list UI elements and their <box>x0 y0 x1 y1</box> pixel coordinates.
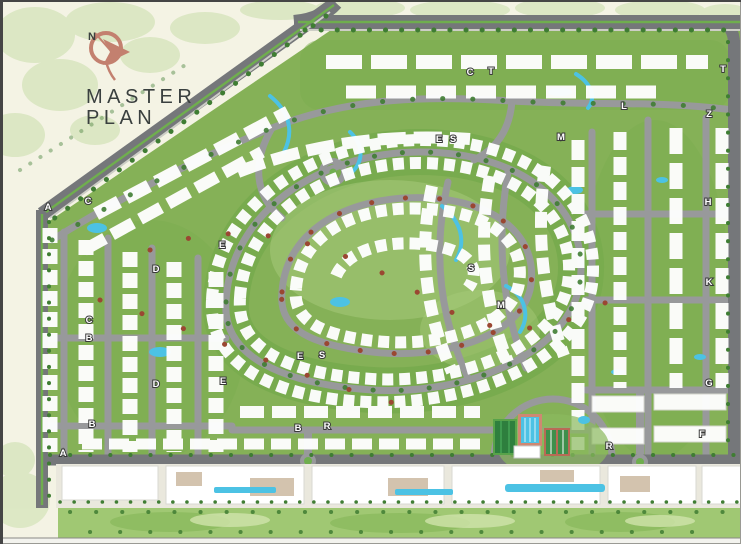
master-plan-poster: ACEDCBESDEBABRCTESMLTZHKSMGFR N MASTER P… <box>0 0 741 544</box>
zone-label-C: C <box>86 315 93 326</box>
zone-label-E: E <box>297 351 303 362</box>
zone-label-A: A <box>60 448 67 459</box>
logo-title-line2: PLAN <box>86 107 156 129</box>
park-strip <box>58 508 741 538</box>
zone-label-E: E <box>220 376 226 387</box>
zone-label-E: E <box>219 240 225 251</box>
zone-label-S: S <box>319 350 325 361</box>
zone-label-E: E <box>436 134 442 145</box>
zone-label-S: S <box>468 263 474 274</box>
zone-label-T: T <box>488 66 494 77</box>
zone-label-S: S <box>450 134 456 145</box>
compass-north-letter: N <box>88 31 96 43</box>
zone-label-B: B <box>86 333 93 344</box>
zone-label-F: F <box>699 429 705 440</box>
zone-label-B: B <box>89 419 96 430</box>
plaza-fountain <box>214 487 276 493</box>
zone-label-H: H <box>705 197 712 208</box>
zone-label-D: D <box>153 264 160 275</box>
commercial-strip <box>56 464 741 508</box>
zone-label-Z: Z <box>706 109 712 120</box>
clubhouse <box>514 446 540 458</box>
zone-label-A: A <box>45 202 52 213</box>
zone-label-T: T <box>720 64 726 75</box>
zone-label-R: R <box>606 441 613 452</box>
zone-label-R: R <box>324 421 331 432</box>
logo-title-line1: MASTER <box>86 86 196 108</box>
master-plan-map: ACEDCBESDEBABRCTESMLTZHKSMGFR N MASTER P… <box>0 0 741 544</box>
zone-label-C: C <box>85 196 92 207</box>
football-field <box>494 420 516 454</box>
lagoon-pool <box>505 484 605 492</box>
zone-label-L: L <box>621 101 627 112</box>
zone-label-M: M <box>497 300 505 311</box>
zone-label-K: K <box>706 277 713 288</box>
zone-label-M: M <box>557 132 565 143</box>
zone-label-C: C <box>467 67 474 78</box>
zone-label-G: G <box>705 378 712 389</box>
zone-label-D: D <box>153 379 160 390</box>
zone-label-B: B <box>295 423 302 434</box>
